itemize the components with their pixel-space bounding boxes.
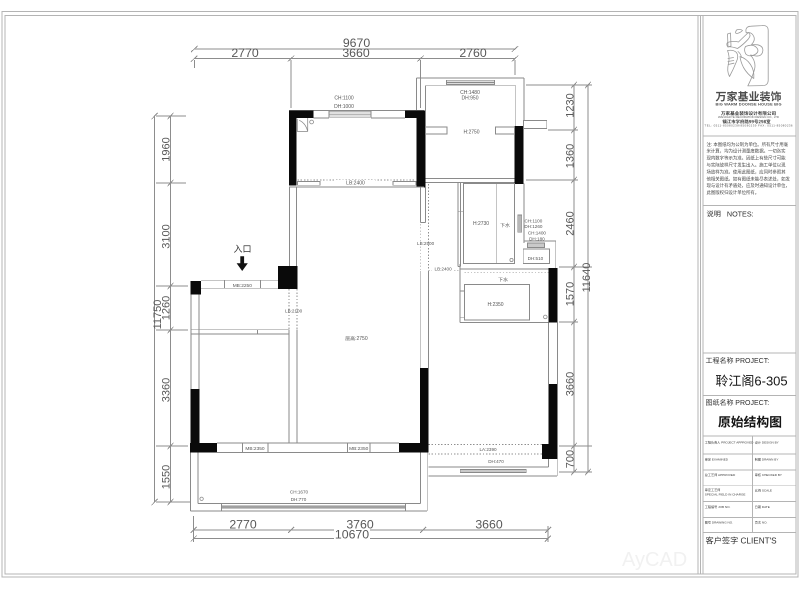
svg-text:DH:770: DH:770 — [291, 497, 307, 502]
svg-text:总工艺师 APPROVED: 总工艺师 APPROVED — [705, 472, 736, 477]
svg-text:LB:2500: LB:2500 — [417, 241, 435, 246]
svg-text:BIG WARM DOONSE HOUSE BIG: BIG WARM DOONSE HOUSE BIG — [716, 101, 782, 106]
svg-text:审核 CHECKED BY: 审核 CHECKED BY — [755, 472, 782, 477]
svg-text:H:2730: H:2730 — [473, 221, 489, 227]
svg-text:审定 EXAMINED: 审定 EXAMINED — [705, 456, 729, 461]
svg-text:CH:1670: CH:1670 — [290, 489, 309, 494]
svg-text:场放样为准。使用此图纸，应同时参照其: 场放样为准。使用此图纸，应同时参照其 — [707, 168, 787, 175]
svg-text:工程编号 JOB NO.: 工程编号 JOB NO. — [705, 504, 731, 509]
svg-text:H:2750: H:2750 — [463, 129, 479, 135]
svg-text:CH:1100: CH:1100 — [525, 219, 543, 224]
svg-text:1960: 1960 — [161, 137, 173, 161]
svg-text:3660: 3660 — [565, 372, 577, 396]
svg-text:3100: 3100 — [161, 224, 173, 248]
svg-text:1260: 1260 — [161, 296, 173, 320]
svg-text:制图 DRAWN BY: 制图 DRAWN BY — [755, 456, 779, 461]
svg-text:图号 DRAWING NO.: 图号 DRAWING NO. — [705, 520, 733, 525]
svg-text:3660: 3660 — [475, 518, 503, 532]
svg-text:PROJECT:: PROJECT: — [735, 358, 769, 365]
svg-text:2770: 2770 — [229, 518, 257, 532]
svg-text:WANJIAJIYE DECORATION DESIGN C: WANJIAJIYE DECORATION DESIGN CO., LTD — [718, 115, 779, 119]
svg-text:1230: 1230 — [565, 93, 577, 117]
svg-text:1550: 1550 — [161, 465, 173, 489]
svg-text:CH:1400: CH:1400 — [528, 231, 547, 236]
svg-text:CH:1100: CH:1100 — [334, 96, 354, 102]
svg-text:页次 NO.: 页次 NO. — [755, 520, 768, 525]
svg-text:DH:1260: DH:1260 — [524, 224, 543, 229]
svg-text:MB:2350: MB:2350 — [245, 446, 265, 452]
svg-text:LB:2100: LB:2100 — [285, 308, 303, 313]
svg-text:NOTES:: NOTES: — [727, 209, 754, 218]
svg-text:6-305: 6-305 — [754, 374, 787, 389]
svg-text:1360: 1360 — [565, 144, 577, 168]
svg-text:2770: 2770 — [231, 46, 259, 60]
svg-text:DH:1000: DH:1000 — [334, 104, 354, 110]
svg-text:10670: 10670 — [335, 528, 369, 542]
svg-text:3360: 3360 — [161, 378, 173, 402]
svg-text:他相关图纸。如有图纸未能尽表述处，如发: 他相关图纸。如有图纸未能尽表述处，如发 — [707, 175, 791, 182]
svg-text:比例 SCALE: 比例 SCALE — [755, 487, 772, 492]
svg-text:1570: 1570 — [565, 282, 577, 306]
svg-text:DH:950: DH:950 — [462, 96, 479, 102]
svg-text:注: 本图纸均为公制为单位。所有尺寸用毫: 注: 本图纸均为公制为单位。所有尺寸用毫 — [707, 141, 789, 148]
svg-text:DH:510: DH:510 — [528, 256, 544, 261]
svg-text:日期 DATE: 日期 DATE — [755, 504, 770, 509]
svg-text:LB:2400: LB:2400 — [346, 181, 365, 187]
svg-text:现与设计有矛盾处，应及时通知设计单位，: 现与设计有矛盾处，应及时通知设计单位， — [707, 182, 790, 189]
svg-text:2460: 2460 — [565, 211, 577, 235]
svg-text:AyCAD: AyCAD — [622, 549, 687, 571]
svg-text:TEL: 0511-85080238/85080239: TEL: 0511-85080238/85080239 FAX: 0511-85… — [705, 123, 793, 127]
svg-text:700: 700 — [565, 450, 577, 468]
svg-text:现内数字等示为准。因纸上有些尺寸可能: 现内数字等示为准。因纸上有些尺寸可能 — [707, 155, 787, 162]
svg-text:3660: 3660 — [342, 46, 370, 60]
svg-text:MB:2350: MB:2350 — [349, 446, 369, 452]
svg-text:MB:2250: MB:2250 — [233, 283, 253, 289]
svg-text:此图版权归设计单位所有。: 此图版权归设计单位所有。 — [707, 189, 760, 196]
svg-text:SPECIAL FIELD IN CHARGE: SPECIAL FIELD IN CHARGE — [705, 492, 746, 496]
svg-text:工程负责人 PROJECT APPROVED: 工程负责人 PROJECT APPROVED — [705, 440, 754, 445]
svg-text:PROJECT:: PROJECT: — [735, 400, 769, 407]
svg-text:LA:2390: LA:2390 — [479, 447, 497, 452]
svg-text:与实际放样尺寸发生出入。施工单位以现: 与实际放样尺寸发生出入。施工单位以现 — [707, 162, 787, 169]
svg-text:2760: 2760 — [459, 46, 487, 60]
svg-text::2750: :2750 — [355, 336, 368, 342]
svg-text:米计算，均为设计测量度数据。一切迄实: 米计算，均为设计测量度数据。一切迄实 — [707, 148, 787, 155]
svg-text:H:2350: H:2350 — [487, 302, 503, 308]
svg-text:CLIENT'S: CLIENT'S — [741, 537, 778, 546]
svg-text:审定工艺师: 审定工艺师 — [705, 487, 720, 492]
svg-text:11640: 11640 — [581, 263, 593, 293]
svg-text:DH:470: DH:470 — [488, 459, 504, 464]
svg-text:设计 DESIGN BY: 设计 DESIGN BY — [755, 440, 779, 445]
svg-text:LB:2400: LB:2400 — [435, 266, 453, 271]
